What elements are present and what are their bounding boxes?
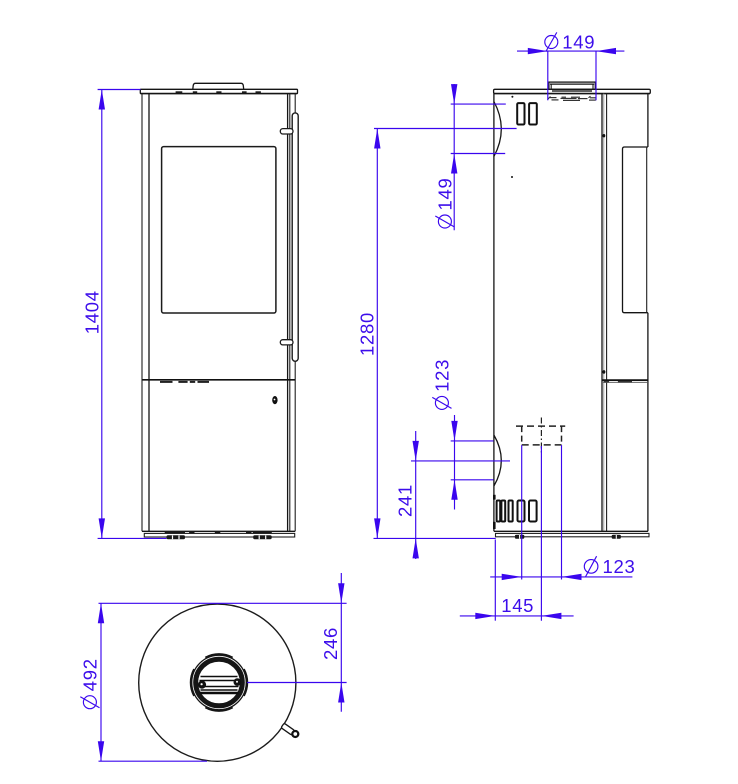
svg-text:149: 149	[435, 178, 456, 211]
svg-text:1404: 1404	[81, 290, 102, 334]
svg-text:241: 241	[395, 484, 416, 517]
svg-text:246: 246	[320, 627, 341, 660]
svg-text:1280: 1280	[356, 312, 377, 356]
svg-text:492: 492	[79, 658, 100, 691]
svg-text:149: 149	[562, 32, 595, 53]
svg-text:123: 123	[432, 359, 453, 392]
svg-text:145: 145	[501, 595, 534, 616]
svg-text:123: 123	[603, 556, 636, 577]
